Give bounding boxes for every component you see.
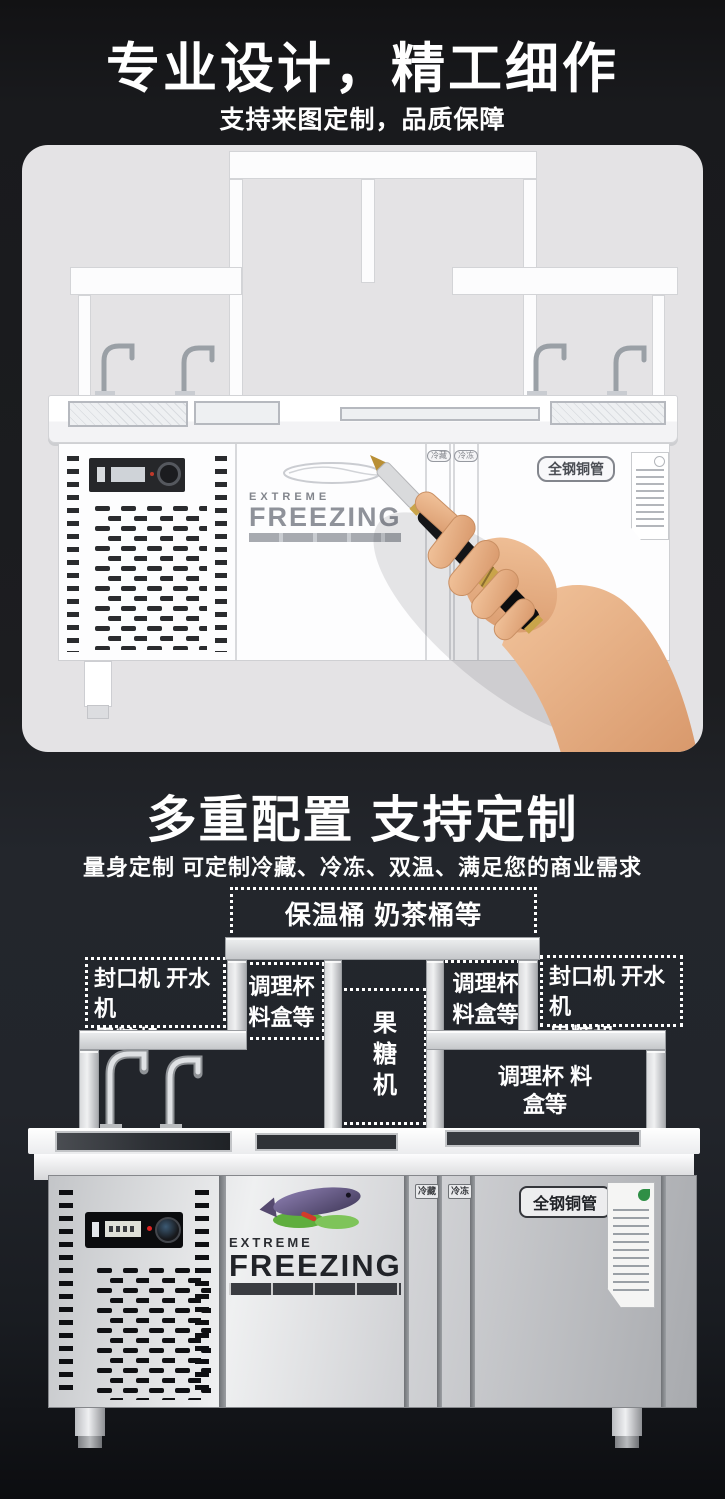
callout-text: 保温桶 奶茶桶等 [285, 895, 482, 932]
fish-logo-graphic [249, 1182, 379, 1230]
temperature-display [105, 1221, 141, 1237]
brand-logo-photo: EXTREME FREEZING [229, 1182, 407, 1295]
leaf-icon [638, 1189, 650, 1201]
indicator-light [147, 1226, 152, 1231]
thermostat-dial [155, 1217, 181, 1243]
callout-cup-box-left: 调理杯 料盒等 [238, 962, 325, 1040]
control-panel [85, 1212, 183, 1248]
leg-foot [615, 1436, 639, 1448]
photo-tray [445, 1130, 641, 1147]
callout-text: 封口机 开水机 [94, 964, 217, 1024]
configuration-diagram: 保温桶 奶茶桶等 封口机 开水机 果糖机 调理杯 料盒等 果糖机 调理杯 料盒等… [0, 880, 725, 1499]
faucet-icon [92, 1038, 212, 1134]
photo-leg [75, 1408, 105, 1436]
sketch-card: EXTREME FREEZING 冷藏 冷冻 全钢铜管 [22, 145, 703, 752]
panel-icon [92, 1222, 99, 1237]
vent-grille [97, 1268, 211, 1400]
photo-sink [55, 1131, 232, 1152]
brand-bar [229, 1283, 401, 1295]
rack-post [324, 960, 342, 1132]
section1-subtitle: 支持来图定制，品质保障 [0, 100, 725, 136]
section2-subtitle: 量身定制 可定制冷藏、冷冻、双温、满足您的商业需求 [0, 850, 725, 882]
section1-title: 专业设计，精工细作 [0, 24, 725, 103]
tag-cold: 冷藏 [415, 1184, 439, 1199]
door-seam [219, 1176, 226, 1407]
leg-foot [78, 1436, 102, 1448]
tag-freeze: 冷冻 [448, 1184, 472, 1199]
brand-main-text: FREEZING [229, 1250, 407, 1281]
callout-left-machines: 封口机 开水机 果糖机 [85, 957, 226, 1028]
callout-right-machines: 封口机 开水机 果糖机 [540, 955, 683, 1027]
photo-leg [612, 1408, 642, 1436]
callout-text: 调理杯 [498, 1064, 564, 1089]
photo-cabinet: EXTREME FREEZING 冷藏 冷冻 全钢铜管 [48, 1175, 697, 1408]
callout-text: 料盒等 [241, 1002, 322, 1033]
callout-text: 料盒等 [441, 999, 530, 1030]
sticker-text-lines [613, 1209, 649, 1293]
vent-column [59, 1190, 73, 1395]
hand-with-pen-illustration [22, 145, 703, 752]
photo-tray [255, 1133, 398, 1151]
callout-fructose-machine: 果糖机 [337, 988, 427, 1125]
callout-kettle-area: 保温桶 奶茶桶等 [230, 887, 537, 940]
label-steel-pipe: 全钢铜管 [519, 1186, 611, 1218]
door-seam [437, 1176, 442, 1407]
rack-upper-bar [225, 937, 540, 960]
door-seam [470, 1176, 475, 1407]
callout-text: 调理杯 [441, 968, 530, 999]
door-seam [661, 1176, 666, 1407]
callout-text: 果糖机 [365, 1010, 400, 1103]
display-digits [109, 1226, 137, 1232]
callout-under-shelf: 调理杯 料盒等 [495, 1063, 595, 1119]
callout-text: 封口机 开水机 [549, 962, 674, 1022]
callout-text: 调理杯 [241, 971, 322, 1002]
promo-page: 专业设计，精工细作 支持来图定制，品质保障 [0, 0, 725, 1499]
certificate-sticker [607, 1182, 655, 1308]
section2-title: 多重配置 支持定制 [0, 780, 725, 852]
rack-post [646, 1050, 666, 1132]
rack-lower-bar-right [426, 1030, 666, 1050]
